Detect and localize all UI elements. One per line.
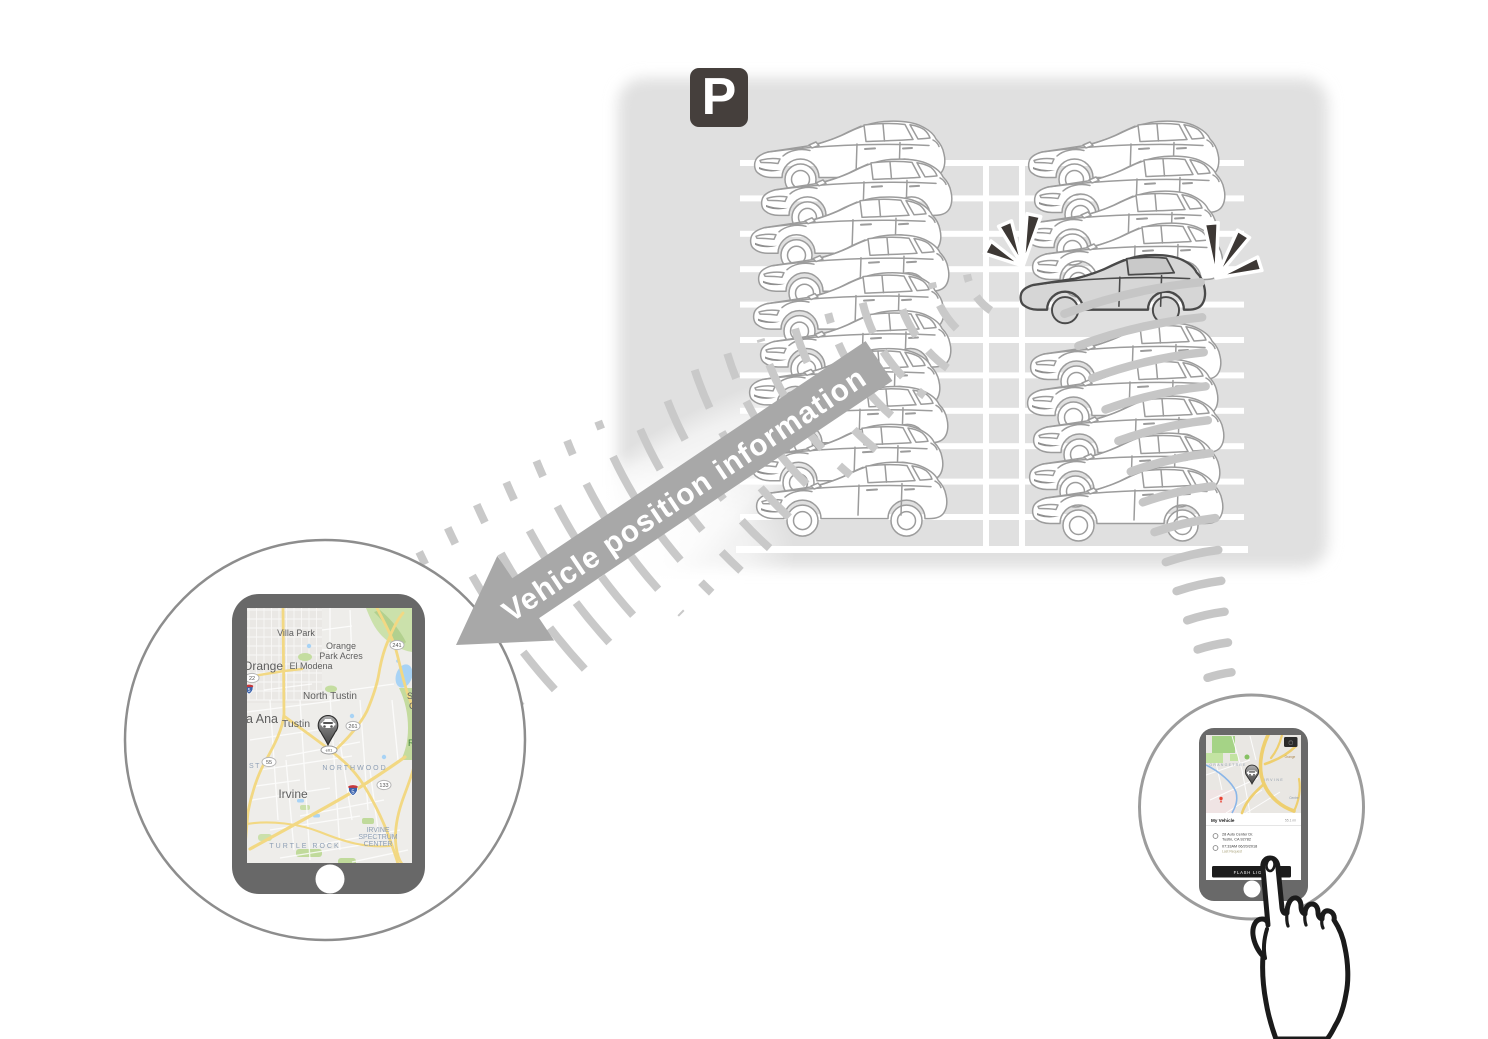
svg-text:North Tustin: North Tustin bbox=[303, 691, 357, 702]
svg-text:5: 5 bbox=[248, 688, 251, 694]
svg-text:Tustin: Tustin bbox=[282, 718, 310, 730]
svg-text:Orange: Orange bbox=[1285, 755, 1296, 759]
svg-text:a Ana: a Ana bbox=[246, 712, 278, 726]
svg-text:Tustin, CA 92782: Tustin, CA 92782 bbox=[1222, 838, 1251, 842]
svg-text:Villa Park: Villa Park bbox=[277, 628, 315, 638]
svg-text:SPECTRUM: SPECTRUM bbox=[358, 834, 397, 841]
svg-text:El Modena: El Modena bbox=[289, 661, 332, 671]
svg-text:My Vehicle: My Vehicle bbox=[1211, 818, 1235, 823]
svg-text:28 Auto Center Dr.: 28 Auto Center Dr. bbox=[1222, 833, 1253, 837]
svg-text:55: 55 bbox=[266, 760, 272, 766]
svg-text:07:33AM 06/20/2018: 07:33AM 06/20/2018 bbox=[1222, 845, 1257, 849]
svg-text:Park Acres: Park Acres bbox=[319, 651, 363, 661]
svg-text:IRVINE: IRVINE bbox=[1264, 778, 1284, 782]
svg-text:261: 261 bbox=[348, 724, 357, 730]
svg-text:IRVINE: IRVINE bbox=[366, 827, 390, 834]
svg-text:TURTLE ROCK: TURTLE ROCK bbox=[269, 843, 340, 850]
svg-text:ORANGETREE: ORANGETREE bbox=[1209, 763, 1246, 767]
svg-text:ST: ST bbox=[249, 763, 261, 770]
svg-text:NORTHWOOD: NORTHWOOD bbox=[322, 765, 387, 772]
svg-text:Irvine: Irvine bbox=[278, 787, 308, 801]
svg-text:Orange: Orange bbox=[243, 659, 283, 673]
svg-text:Centre: Centre bbox=[1289, 796, 1299, 800]
svg-text:▢: ▢ bbox=[1288, 740, 1293, 746]
svg-text:Orange: Orange bbox=[326, 641, 356, 651]
svg-text:22: 22 bbox=[249, 676, 255, 682]
svg-text:Last Request: Last Request bbox=[1222, 850, 1242, 854]
svg-text:5: 5 bbox=[351, 789, 354, 795]
svg-text:55.1 mi: 55.1 mi bbox=[1285, 819, 1296, 823]
svg-text:133: 133 bbox=[379, 783, 388, 789]
svg-text:e01: e01 bbox=[326, 748, 333, 753]
svg-text:CENTER: CENTER bbox=[364, 841, 393, 848]
svg-text:P: P bbox=[702, 68, 737, 126]
svg-text:241: 241 bbox=[392, 643, 401, 649]
